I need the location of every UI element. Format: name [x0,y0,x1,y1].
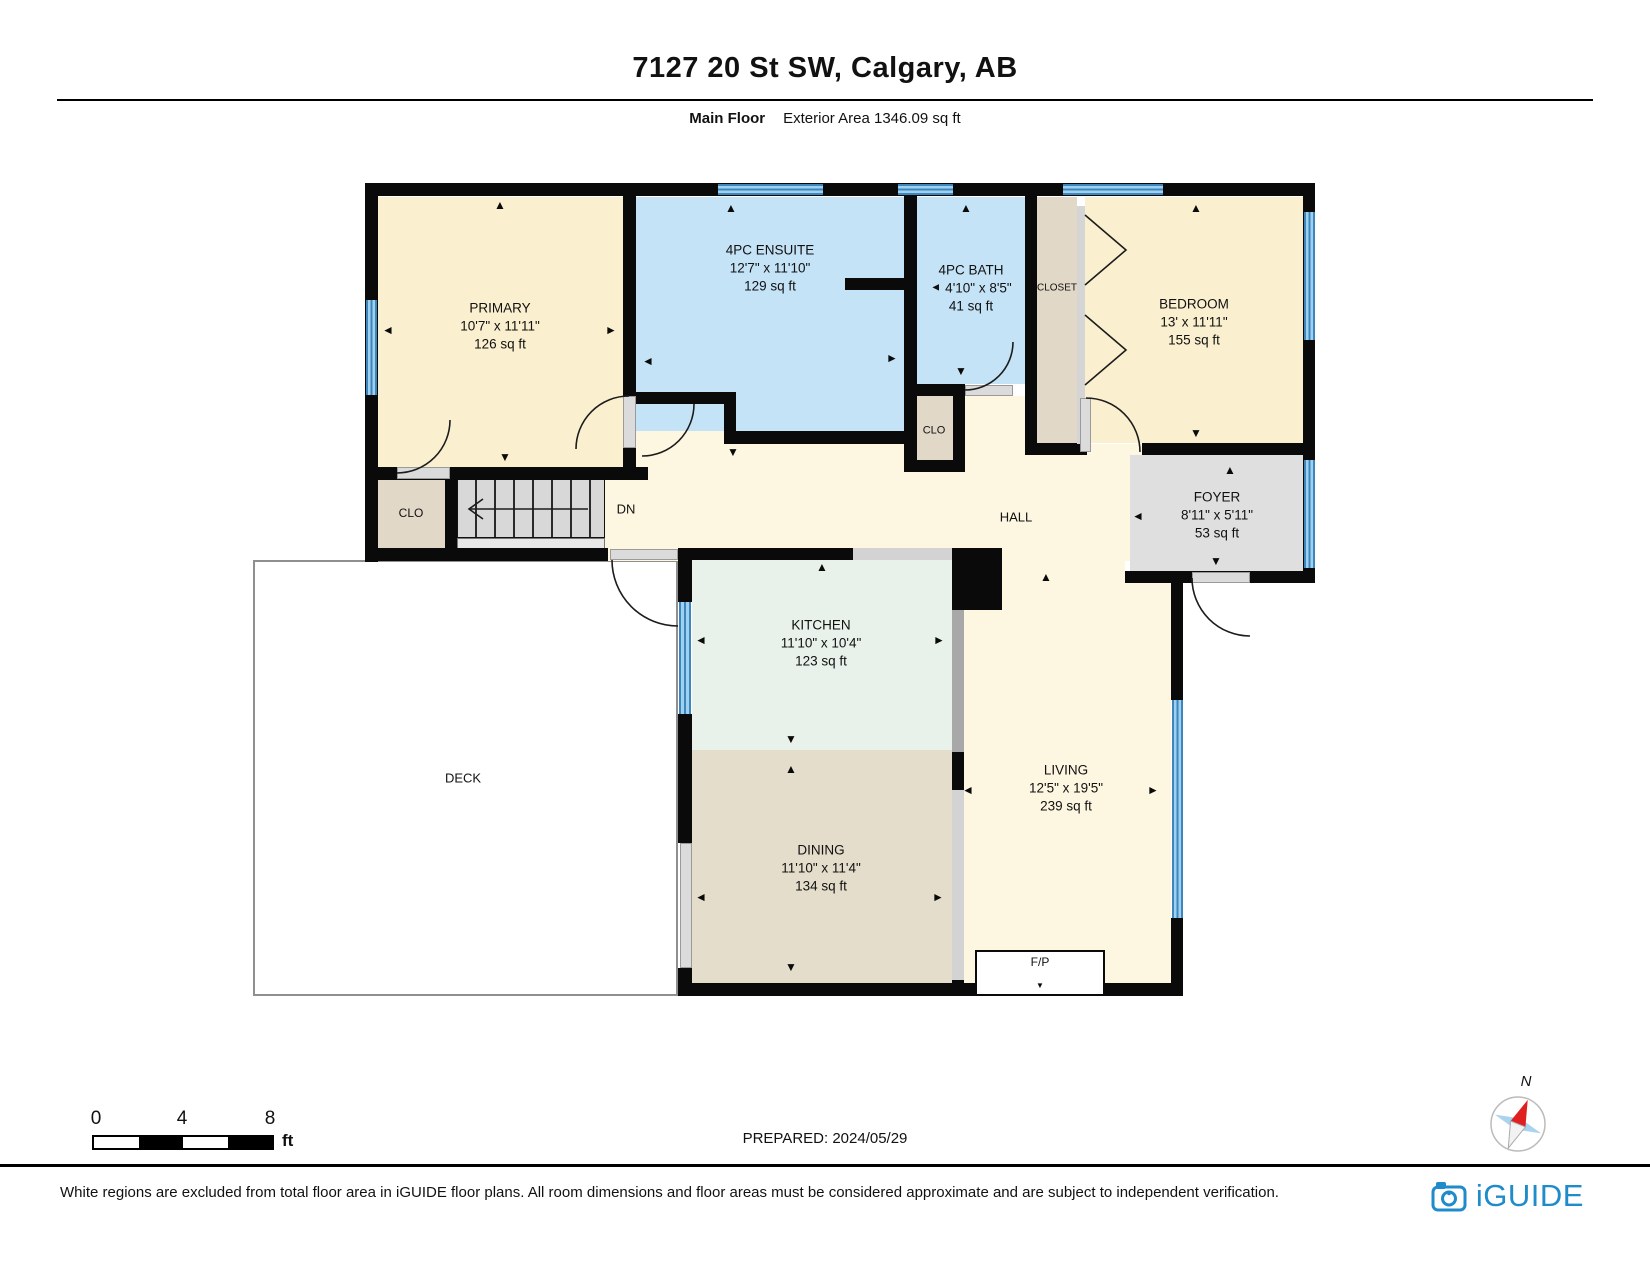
wall-segment [904,183,917,472]
label-clo-primary: CLO [399,506,424,522]
down-arrow-icon: ▼ [1210,555,1222,567]
left-arrow-icon: ◄ [382,324,394,336]
window [1172,700,1183,918]
wall-opening [952,790,964,980]
iguide-wordmark: iGUIDE [1476,1178,1584,1214]
window [679,602,691,714]
left-arrow-icon: ◄ [1132,510,1144,522]
compass-north-label: N [1521,1073,1532,1090]
door-leaf [1080,398,1091,452]
room-closet [1037,197,1077,443]
left-arrow-icon: ◄ [695,891,707,903]
title-divider [57,99,1593,101]
sliding-door [680,843,692,968]
up-arrow-icon: ▲ [1040,571,1052,583]
down-arrow-icon: ▼ [499,451,511,463]
wall-segment [1025,183,1037,455]
label-closet: CLOSET [1037,281,1077,294]
down-arrow-icon: ▼ [1190,427,1202,439]
label-bedroom: BEDROOM13' x 11'11"155 sq ft [1159,295,1229,348]
floor-subtitle: Main FloorExterior Area 1346.09 sq ft [0,110,1650,127]
footer-disclaimer: White regions are excluded from total fl… [60,1184,1350,1201]
right-arrow-icon: ► [932,891,944,903]
left-arrow-icon: ◄ [695,634,707,646]
door-leaf [623,396,636,448]
label-ensuite: 4PC ENSUITE12'7" x 11'10"129 sq ft [726,241,815,294]
pass-through-opening [853,548,952,560]
wall-segment [1142,443,1315,455]
door-leaf [397,467,450,479]
label-bath: 4PC BATH ◄4'10" x 8'5" 41 sq ft [930,261,1011,314]
wall-segment [1171,583,1183,700]
label-kitchen: KITCHEN11'10" x 10'4"123 sq ft [781,616,862,669]
label-stairs-dn: DN [617,500,636,517]
up-arrow-icon: ▲ [725,202,737,214]
iguide-camera-icon [1430,1179,1468,1213]
window [718,184,823,195]
door-leaf [610,549,678,560]
down-arrow-icon: ▼ [955,365,967,377]
down-arrow-icon: ▼ [727,446,739,458]
left-arrow-icon: ◄ [962,784,974,796]
wall-segment [365,548,608,561]
door-leaf [1192,572,1250,583]
door-leaf [965,385,1013,396]
up-arrow-icon: ▲ [1224,464,1236,476]
wall-segment [365,183,1315,196]
up-arrow-icon: ▲ [960,202,972,214]
compass-rose: N [1468,1068,1568,1168]
window [898,184,953,195]
wall-segment [678,714,692,843]
down-arrow-icon: ▼ [1036,982,1044,990]
prepared-date: PREPARED: 2024/05/29 [0,1130,1650,1147]
label-foyer: FOYER8'11" x 5'11"53 sq ft [1181,488,1253,541]
wall-segment [724,392,736,444]
window [1304,212,1315,340]
window [1304,460,1315,568]
label-primary: PRIMARY10'7" x 11'11"126 sq ft [460,299,540,352]
staircase [457,479,605,538]
left-arrow-icon: ◄ [642,355,654,367]
label-deck: DECK [445,769,481,786]
up-arrow-icon: ▲ [494,199,506,211]
label-living: LIVING12'5" x 19'5"239 sq ft [1029,761,1103,814]
right-arrow-icon: ► [1147,784,1159,796]
wall-segment [1171,918,1183,996]
label-hall: HALL [1000,508,1033,525]
label-clo-bath: CLO [923,424,946,439]
footer-divider [0,1164,1650,1167]
floor-name: Main Floor [689,110,765,127]
scale-tick-8: 8 [265,1108,276,1130]
wall-segment [1030,443,1087,455]
scale-tick-4: 4 [177,1108,188,1130]
counter-strip [952,610,964,752]
wall-segment [904,384,965,396]
page-title: 7127 20 St SW, Calgary, AB [0,52,1650,85]
hall-floor [1001,561,1125,583]
up-arrow-icon: ▲ [785,763,797,775]
chimney-block [952,548,1002,610]
window [366,300,377,395]
wall-segment [904,460,965,472]
label-fireplace: F/P [1031,955,1050,971]
up-arrow-icon: ▲ [816,561,828,573]
right-arrow-icon: ► [886,352,898,364]
wall-segment [445,479,457,548]
down-arrow-icon: ▼ [785,961,797,973]
wall-segment [736,431,904,444]
window [1063,184,1163,195]
right-arrow-icon: ► [605,324,617,336]
up-arrow-icon: ▲ [1190,202,1202,214]
exterior-area: Exterior Area 1346.09 sq ft [783,110,961,127]
wall-segment [678,983,1183,996]
scale-tick-0: 0 [91,1108,102,1130]
wall-segment [678,548,853,560]
right-arrow-icon: ► [933,634,945,646]
wall-segment [636,392,724,404]
wall-segment [845,278,904,290]
label-dining: DINING11'10" x 11'4"134 sq ft [781,841,861,894]
down-arrow-icon: ▼ [785,733,797,745]
iguide-logo: iGUIDE [1430,1178,1584,1214]
hall-floor [965,396,1030,444]
left-arrow-icon: ◄ [930,281,941,296]
hall-floor [636,444,1142,561]
